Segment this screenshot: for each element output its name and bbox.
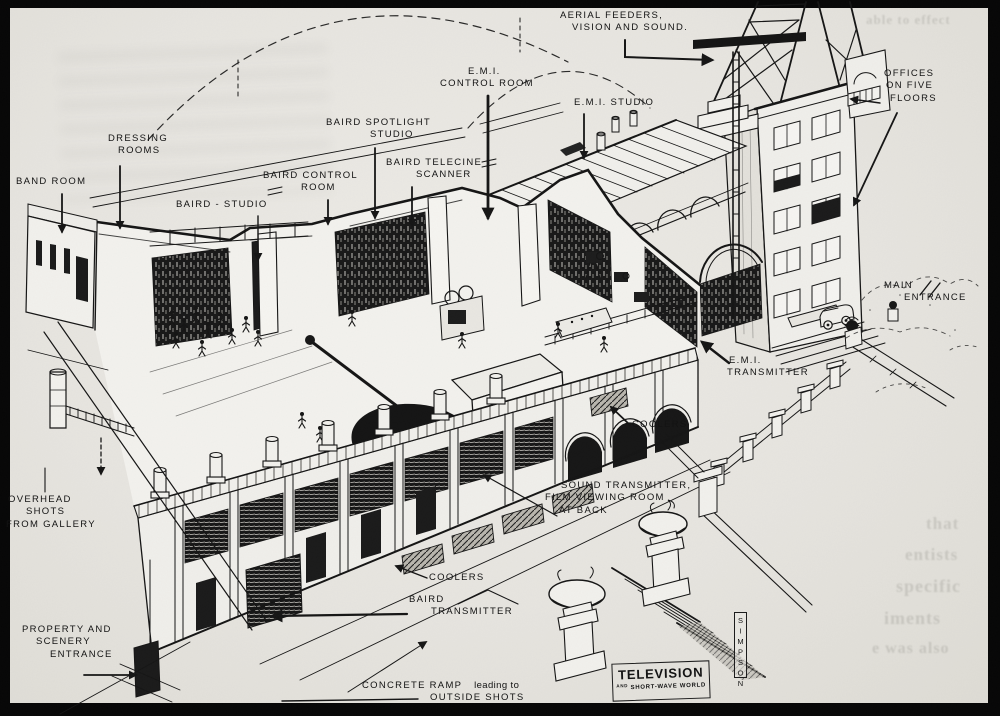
label-coolers-lower: COOLERS <box>429 572 485 584</box>
label-baird-spotlight-studio: BAIRD SPOTLIGHT STUDIO <box>326 117 431 142</box>
label-emi-transmitter: E.M.I. TRANSMITTER <box>727 355 809 380</box>
label-concrete-ramp: CONCRETE RAMP leading to OUTSIDE SHOTS <box>362 680 525 705</box>
label-overhead-shots: OVERHEAD SHOTS FROM GALLERY <box>6 494 96 531</box>
logo-sub-text: SHORT-WAVE WORLD <box>631 682 707 691</box>
artist-signature: SIMPSON <box>734 612 747 678</box>
label-emi-control-room: E.M.I. CONTROL ROOM <box>440 66 534 91</box>
label-main-entrance: MAIN ENTRANCE <box>884 280 967 305</box>
plate-frame: able to effect that entists specific ime… <box>0 0 1000 716</box>
label-coolers-upper: COOLERS <box>632 419 688 431</box>
label-emi-studio: E.M.I. STUDIO <box>574 97 654 109</box>
label-baird-telecine-scanner: BAIRD TELECINE SCANNER <box>386 157 482 182</box>
label-property-entrance: PROPERTY AND SCENERY ENTRANCE <box>20 624 113 661</box>
label-dressing-rooms: DRESSING ROOMS <box>104 133 168 158</box>
label-baird-studio: BAIRD - STUDIO <box>176 199 268 211</box>
label-baird-control-room: BAIRD CONTROL ROOM <box>263 170 358 195</box>
label-band-room: BAND ROOM <box>16 176 86 188</box>
label-sound-transmitter: SOUND TRANSMITTER, FILM VIEWING ROOM AT … <box>545 480 691 517</box>
label-offices: OFFICES ON FIVE FLOORS <box>884 68 937 105</box>
label-aerial-feeders: AERIAL FEEDERS, VISION AND SOUND. <box>560 10 688 35</box>
logo-and: AND <box>616 683 628 688</box>
magazine-logo: TELEVISION AND SHORT-WAVE WORLD <box>611 660 710 701</box>
label-baird-transmitter: BAIRD TRANSMITTER <box>409 594 513 619</box>
